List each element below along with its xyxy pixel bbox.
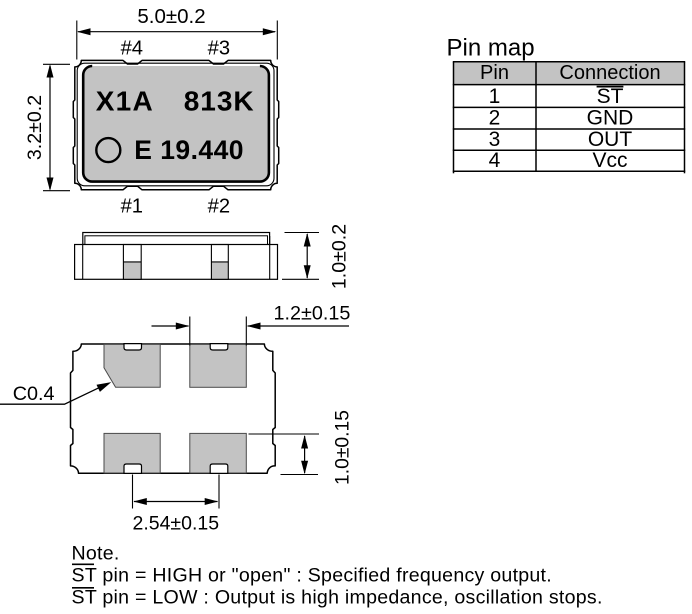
svg-text:OUT: OUT <box>588 128 633 151</box>
svg-text:Vcc: Vcc <box>592 149 627 172</box>
svg-text:5.0±0.2: 5.0±0.2 <box>137 5 205 28</box>
svg-text:ST pin = HIGH or "open" : Spec: ST pin = HIGH or "open" : Specified freq… <box>72 565 552 587</box>
svg-text:1.2±0.15: 1.2±0.15 <box>274 303 351 325</box>
svg-text:2.54±0.15: 2.54±0.15 <box>132 513 219 535</box>
svg-text:Pin: Pin <box>480 62 509 84</box>
svg-text:#3: #3 <box>208 38 230 60</box>
svg-text:1.0±0.2: 1.0±0.2 <box>329 224 351 289</box>
svg-text:#4: #4 <box>121 38 143 60</box>
svg-text:1: 1 <box>489 85 501 108</box>
svg-text:ST pin = LOW : Output is high: ST pin = LOW : Output is high impedance,… <box>72 587 603 609</box>
svg-text:X1A: X1A <box>96 86 154 117</box>
svg-text:ST: ST <box>597 85 624 108</box>
svg-text:3.2±0.2: 3.2±0.2 <box>24 95 46 160</box>
svg-text:#1: #1 <box>121 195 143 217</box>
svg-text:Connection: Connection <box>559 62 660 84</box>
svg-text:4: 4 <box>489 149 501 172</box>
svg-text:3: 3 <box>489 128 501 151</box>
svg-text:Pin map: Pin map <box>447 34 535 61</box>
svg-text:C0.4: C0.4 <box>13 383 55 405</box>
svg-text:E 19.440: E 19.440 <box>134 135 244 165</box>
svg-text:2: 2 <box>489 107 501 130</box>
svg-text:Note.: Note. <box>72 543 120 565</box>
svg-text:1.0±0.15: 1.0±0.15 <box>333 410 354 485</box>
svg-text:813K: 813K <box>184 86 255 117</box>
svg-text:#2: #2 <box>208 195 230 217</box>
svg-text:GND: GND <box>587 107 634 130</box>
